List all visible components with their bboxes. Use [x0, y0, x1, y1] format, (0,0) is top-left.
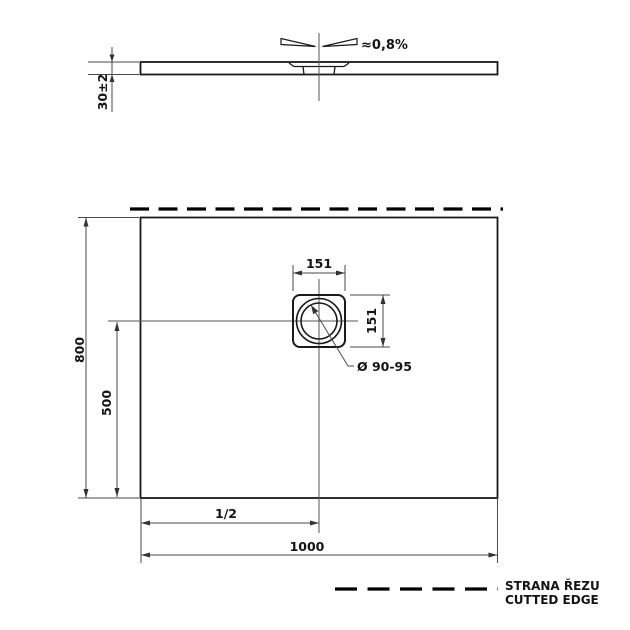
width-dim-label: 1000 — [290, 539, 325, 554]
legend-label-english: CUTTED EDGE — [505, 593, 599, 607]
height-dim-label: 30±2 — [95, 74, 110, 111]
slope-label: ≈0,8% — [361, 38, 408, 53]
drain-width-dim-label: 151 — [306, 256, 332, 271]
drain-offset-dimension: 500 — [99, 322, 120, 497]
drain-offset-dim-label: 500 — [99, 390, 114, 416]
half-width-dim-label: 1/2 — [215, 506, 237, 521]
legend-label-czech: STRANA ŘEZU — [505, 578, 600, 593]
section-view: ≈0,8% 30±2 — [88, 33, 498, 112]
side-length-dim-label: 800 — [72, 337, 87, 363]
legend: STRANA ŘEZU CUTTED EDGE — [335, 578, 600, 607]
drain-diameter-label: Ø 90-95 — [357, 359, 412, 374]
drawing-canvas: ≈0,8% 30±2 — [0, 0, 630, 630]
plan-view: 151 151 Ø 90-95 800 — [72, 209, 503, 563]
height-dimension: 30±2 — [88, 47, 139, 112]
technical-drawing-svg: ≈0,8% 30±2 — [0, 0, 630, 630]
drain-height-dim-label: 151 — [364, 308, 379, 334]
side-length-dimension: 800 — [72, 218, 139, 499]
